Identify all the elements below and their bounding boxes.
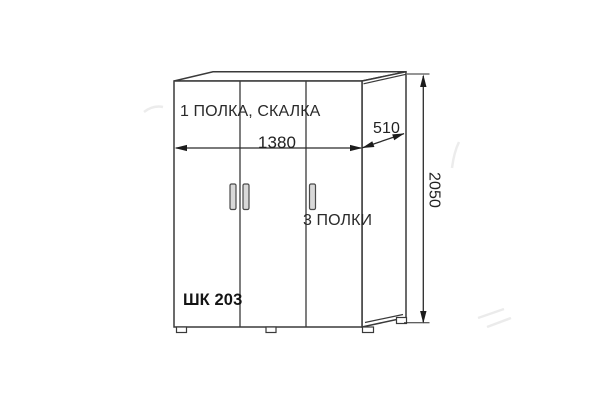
door-handle-left [230,184,236,210]
arrowhead-top-icon [420,75,426,88]
foot-middle [266,327,276,333]
foot-right-front [363,327,374,333]
furniture-diagram: 1 ПОЛКА, СКАЛКА 1380 510 2050 3 ПОЛКИ ШК… [0,0,600,405]
cabinet-drawing [0,0,600,405]
right-compartment-label: 3 ПОЛКИ [303,213,372,230]
door-handle-right [310,184,316,210]
side-panel [362,72,406,327]
door-handle-middle [243,184,249,210]
top-compartment-label: 1 ПОЛКА, СКАЛКА [180,104,320,121]
foot-left [177,327,187,333]
model-label: ШК 203 [183,292,242,309]
height-dimension-value: 2050 [425,172,442,208]
width-dimension-value: 1380 [247,134,307,152]
arrowhead-bottom-icon [420,311,426,324]
depth-dimension-value: 510 [373,121,400,138]
